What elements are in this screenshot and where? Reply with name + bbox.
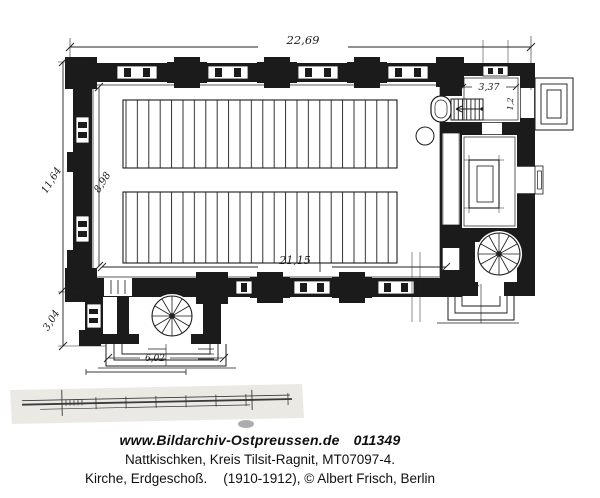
dim-exterior-width: 11,64 [40, 166, 65, 196]
porch-entrance-steps [98, 344, 236, 368]
dim-porch-width: 6,02 [145, 354, 165, 364]
caption-line-archive: www.Bildarchiv-Ostpreussen.de011349 [0, 431, 520, 450]
dim-door-width: 1,2 [506, 97, 515, 110]
dim-side-entrance-width: 1,67 [460, 284, 480, 296]
dim-sacristy-width: 3,37 [478, 82, 500, 93]
dim-interior-length: 21,15 [278, 254, 311, 267]
baptismal-font [416, 127, 434, 145]
scanned-archive-page: 22,69 21,15 11,64 8,98 3,04 6,02 3,37 1,… [0, 0, 600, 498]
dim-total-length: 22,69 [286, 33, 320, 47]
spiral-stair-sw [150, 294, 194, 338]
archive-url-text: www.Bildarchiv-Ostpreussen.de [120, 432, 340, 448]
caption-subject: Kirche, Erdgeschoß. [85, 471, 207, 486]
altar [464, 155, 504, 213]
pew-blocks [123, 100, 397, 263]
east-entrance-steps [535, 78, 573, 130]
spiral-stair-se [476, 231, 522, 277]
image-number: 011349 [354, 432, 401, 448]
dim-porch-depth: 3,04 [41, 308, 62, 333]
pulpit-and-stair [431, 96, 484, 122]
caption-line-subject: Kirche, Erdgeschoß.(1910-1912), © Albert… [0, 469, 520, 488]
church-floor-plan: 22,69 21,15 11,64 8,98 3,04 6,02 3,37 1,… [0, 0, 600, 430]
scan-smudge [238, 420, 254, 428]
caption-location: Nattkischken, Kreis Tilsit-Ragnit, MT070… [0, 450, 520, 469]
dim-interior-width: 8,98 [92, 170, 113, 195]
caption-credit: (1910-1912), © Albert Frisch, Berlin [223, 471, 435, 486]
pew-block-south [123, 192, 397, 263]
caption: www.Bildarchiv-Ostpreussen.de011349 Natt… [0, 431, 520, 488]
pew-block-north [123, 100, 397, 168]
